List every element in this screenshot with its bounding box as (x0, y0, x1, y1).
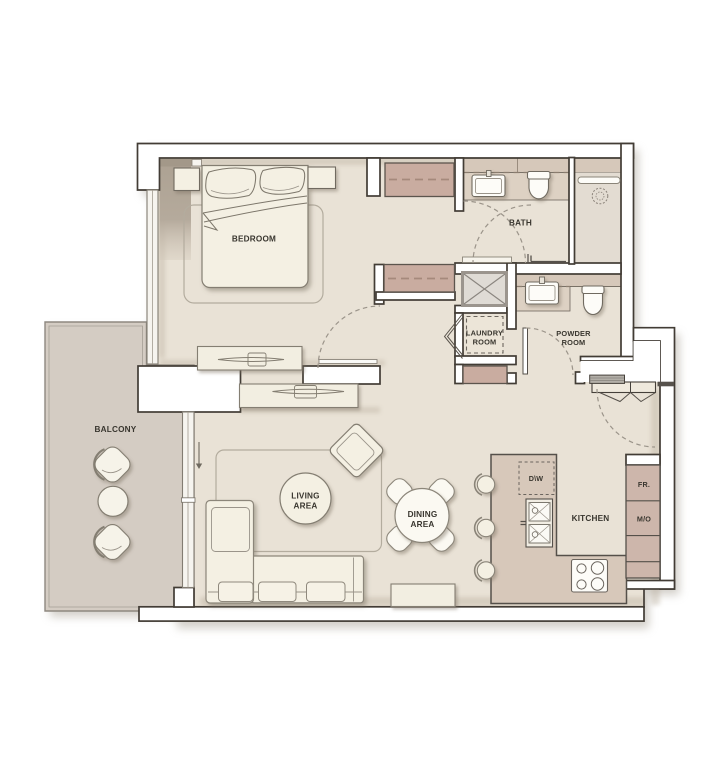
svg-text:ROOM: ROOM (562, 338, 586, 347)
svg-text:DINING: DINING (408, 510, 438, 519)
svg-text:D\W: D\W (529, 474, 544, 483)
svg-text:M/O: M/O (637, 515, 651, 524)
svg-text:KITCHEN: KITCHEN (572, 514, 610, 523)
svg-text:LIVING: LIVING (291, 492, 320, 501)
svg-text:BATH: BATH (509, 219, 532, 228)
svg-text:BALCONY: BALCONY (95, 425, 137, 434)
svg-text:POWDER: POWDER (556, 329, 591, 338)
svg-text:ROOM: ROOM (473, 338, 497, 347)
svg-text:AREA: AREA (411, 520, 435, 529)
svg-text:LAUNDRY: LAUNDRY (466, 329, 503, 338)
svg-text:FR.: FR. (638, 480, 650, 489)
svg-text:AREA: AREA (294, 502, 318, 511)
svg-text:BEDROOM: BEDROOM (232, 235, 276, 244)
